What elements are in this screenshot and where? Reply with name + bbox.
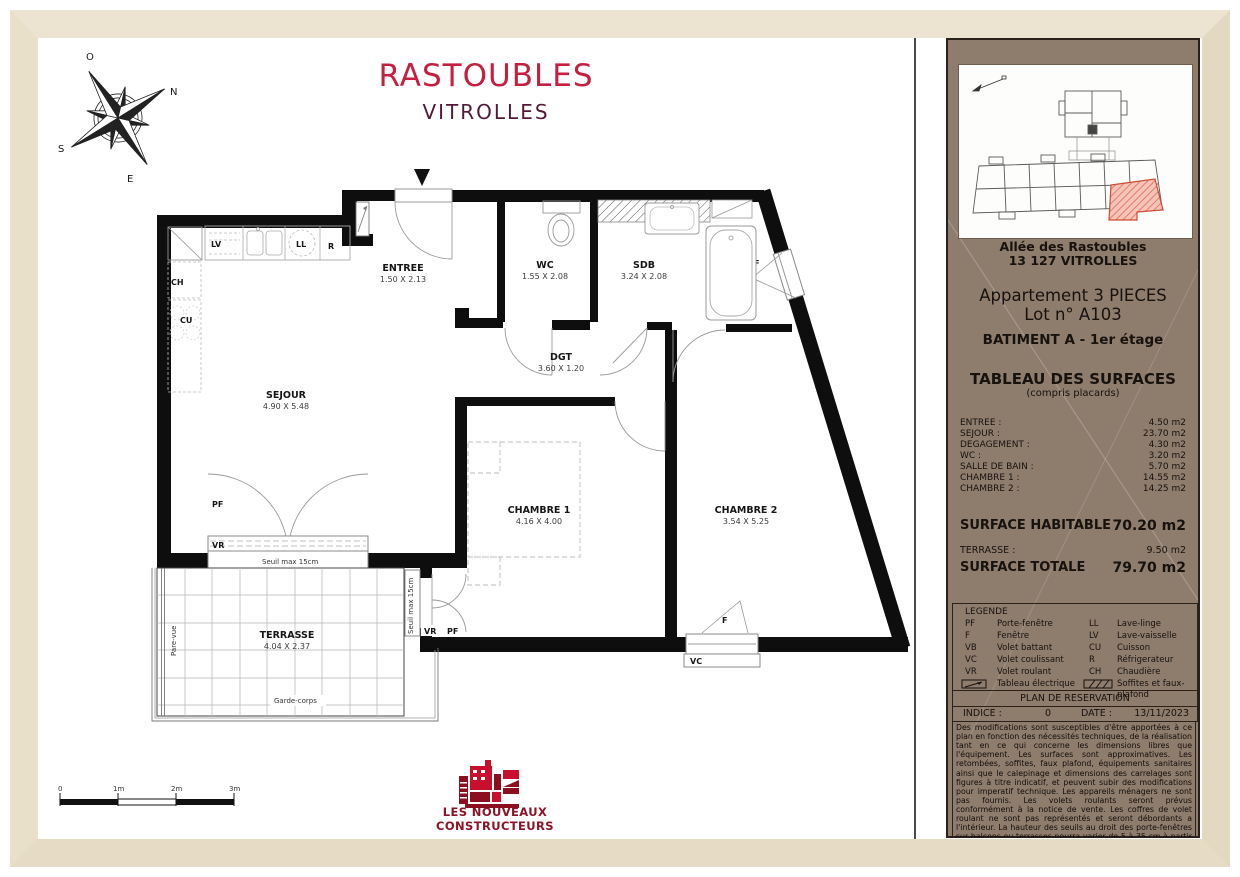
scale-3m: 3m	[229, 785, 240, 793]
room-dgt: DGT	[550, 352, 573, 363]
room-sejour-dims: 4.90 X 5.48	[263, 402, 309, 411]
surfaces-table: ENTREE :4.50 m2 SEJOUR :23.70 m2 DEGAGEM…	[960, 418, 1186, 495]
vr-label: VR	[212, 541, 224, 550]
legend-abbr: VR	[965, 667, 991, 678]
surface-value: 23.70 m2	[1143, 429, 1186, 440]
address-city: 13 127 VITROLLES	[948, 254, 1198, 268]
table-row: CHAMBRE 1 :14.55 m2	[960, 473, 1186, 484]
surface-label: SALLE DE BAIN :	[960, 462, 1034, 473]
habitable-label: SURFACE HABITABLE	[960, 518, 1111, 534]
legend-label: Chaudière	[1117, 667, 1160, 678]
address: Allée des Rastoubles 13 127 VITROLLES	[948, 240, 1198, 268]
logo-line1: LES NOUVEAUX	[395, 806, 595, 820]
vc-label: VC	[690, 657, 702, 666]
surface-value: 4.30 m2	[1149, 440, 1186, 451]
surface-label: DEGAGEMENT :	[960, 440, 1030, 451]
legend-abbr: VC	[965, 655, 991, 666]
room-wc-dims: 1.55 X 2.08	[522, 272, 568, 281]
totale-value: 79.70 m2	[1113, 560, 1187, 576]
legend-label: Lave-vaisselle	[1117, 631, 1177, 642]
table-row: ENTREE :4.50 m2	[960, 418, 1186, 429]
room-wc: WC	[536, 260, 553, 271]
lv-label: LV	[211, 240, 222, 249]
compass-o: O	[86, 52, 94, 63]
room-chambre2-dims: 3.54 X 5.25	[723, 517, 769, 526]
legend-abbr: VB	[965, 643, 991, 654]
room-labels: SEJOUR 4.90 X 5.48 ENTREE 1.50 X 2.13 WC…	[260, 260, 778, 651]
mini-map	[959, 65, 1192, 238]
ch-label: CH	[171, 278, 184, 287]
soffits-icon	[1083, 679, 1113, 689]
mini-building-upper	[1059, 91, 1127, 137]
surface-label: WC :	[960, 451, 981, 462]
indice-value: 0	[1045, 706, 1051, 721]
legend-abbr: R	[1089, 655, 1113, 666]
scale-1m: 1m	[113, 785, 124, 793]
electrical-panel-icon	[961, 679, 987, 689]
legend-abbr: PF	[965, 619, 991, 630]
compass-n: N	[170, 87, 177, 98]
date-value: 13/11/2023	[1134, 706, 1189, 721]
ll-label: LL	[296, 240, 306, 249]
terrasse-label: TERRASSE :	[960, 545, 1015, 556]
room-terrasse-dims: 4.04 X 2.37	[264, 642, 310, 651]
surface-label: SEJOUR :	[960, 429, 1000, 440]
sejour-terrace-door: Seuil max 15cm PF VR	[208, 474, 368, 568]
legend-abbr: LL	[1089, 619, 1113, 630]
room-entree: ENTREE	[382, 263, 423, 274]
legend-label: Fenêtre	[997, 631, 1029, 642]
building-floor: BATIMENT A - 1er étage	[948, 332, 1198, 348]
scale-2m: 2m	[171, 785, 182, 793]
compass-e: E	[127, 174, 133, 185]
fridge-label: R	[328, 242, 334, 251]
apartment-lot: Lot n° A103	[948, 305, 1198, 324]
pf-label-2: PF	[447, 627, 458, 636]
vr-label-2: VR	[424, 627, 436, 636]
apartment-heading: Appartement 3 PIECES Lot n° A103	[948, 286, 1198, 324]
table-row: WC :3.20 m2	[960, 451, 1186, 462]
info-panel: Allée des Rastoubles 13 127 VITROLLES Ap…	[946, 38, 1200, 838]
legend-label: Volet battant	[997, 643, 1052, 654]
chambre2-window: VC F	[684, 601, 760, 667]
entrance-arrow-icon	[414, 169, 430, 186]
indice-label: INDICE :	[963, 706, 1002, 721]
mini-compass-icon	[973, 76, 1006, 91]
sdb-window: F	[752, 249, 805, 300]
compass-s: S	[58, 144, 64, 155]
table-row: SALLE DE BAIN :5.70 m2	[960, 462, 1186, 473]
legend-label: Réfrigerateur	[1117, 655, 1173, 666]
legend-abbr: CU	[1089, 643, 1113, 654]
room-chambre2: CHAMBRE 2	[715, 505, 778, 516]
surface-value: 5.70 m2	[1149, 462, 1186, 473]
compass-rose: O N E S	[42, 42, 194, 194]
walls	[157, 190, 908, 652]
date-label: DATE :	[1081, 706, 1112, 721]
garde-corps-label: Garde-corps	[274, 697, 317, 705]
surface-habitable-row: SURFACE HABITABLE 70.20 m2	[960, 518, 1186, 534]
surface-value: 4.50 m2	[1149, 418, 1186, 429]
seuil-label: Seuil max 15cm	[262, 558, 319, 566]
table-row: CHAMBRE 2 :14.25 m2	[960, 484, 1186, 495]
surface-label: CHAMBRE 2 :	[960, 484, 1020, 495]
legend-abbr: F	[965, 631, 991, 642]
legend-label: Volet roulant	[997, 667, 1051, 678]
mini-connector	[1069, 137, 1115, 160]
surface-value: 14.55 m2	[1143, 473, 1186, 484]
habitable-value: 70.20 m2	[1113, 518, 1187, 534]
scale-0: 0	[58, 785, 62, 793]
legend-label: Volet coulissant	[997, 655, 1064, 666]
terrasse-value: 9.50 m2	[1147, 545, 1186, 556]
totale-label: SURFACE TOTALE	[960, 560, 1085, 576]
mini-apartment-highlight	[1109, 179, 1163, 220]
pf-label: PF	[212, 500, 223, 509]
entrance-door	[395, 169, 452, 259]
surface-label: ENTREE :	[960, 418, 1001, 429]
legend-title: LEGENDE	[965, 607, 1008, 617]
legend-abbr: CH	[1089, 667, 1113, 678]
window-f2-label: F	[722, 616, 727, 625]
room-chambre1-dims: 4.16 X 4.00	[516, 517, 562, 526]
toilet	[543, 201, 580, 246]
location-inset	[958, 64, 1193, 239]
legend-label: Cuisson	[1117, 643, 1150, 654]
room-sdb: SDB	[633, 260, 655, 271]
scale-bar: 0 1m 2m 3m	[58, 785, 240, 806]
surface-label: CHAMBRE 1 :	[960, 473, 1020, 484]
bathroom-fixtures	[598, 200, 756, 320]
panel-separator	[914, 38, 916, 839]
kitchen-fixtures: LV LL R CH CU	[168, 202, 369, 392]
cu-label: CU	[180, 316, 192, 325]
indice-date-row: INDICE : 0 DATE : 13/11/2023	[952, 706, 1198, 722]
legend-elec-label: Tableau électrique	[997, 679, 1075, 690]
builder-logo-text: LES NOUVEAUX CONSTRUCTEURS	[395, 806, 595, 833]
chambre1-terrace-door: Seuil max 15cm VR PF	[405, 570, 466, 636]
room-terrasse: TERRASSE	[260, 630, 315, 641]
room-dgt-dims: 3.60 X 1.20	[538, 364, 584, 373]
room-chambre1: CHAMBRE 1	[508, 505, 571, 516]
builder-logo-icon	[459, 760, 519, 808]
legend-abbr: LV	[1089, 631, 1113, 642]
room-sejour: SEJOUR	[266, 390, 307, 401]
room-sdb-dims: 3.24 X 2.08	[621, 272, 667, 281]
terrasse-row: TERRASSE : 9.50 m2	[960, 545, 1186, 556]
table-row: DEGAGEMENT :4.30 m2	[960, 440, 1186, 451]
interior-doors	[505, 328, 725, 451]
disclaimer-text: Des modifications sont susceptibles d'êt…	[952, 721, 1196, 838]
room-entree-dims: 1.50 X 2.13	[380, 275, 426, 284]
surface-value: 14.25 m2	[1143, 484, 1186, 495]
legend-soffits-label: Soffites et faux-plafond	[1117, 679, 1197, 690]
legend-box: LEGENDE PF Porte-fenêtre F Fenêtre VB Vo…	[952, 603, 1198, 691]
floorplan-page: RASTOUBLES VITROLLES	[0, 0, 1240, 877]
logo-line2: CONSTRUCTEURS	[395, 820, 595, 834]
apartment-type: Appartement 3 PIECES	[948, 286, 1198, 305]
surface-value: 3.20 m2	[1149, 451, 1186, 462]
seuil-label-2: Seuil max 15cm	[407, 577, 415, 634]
surfaces-subtitle: (compris placards)	[948, 388, 1198, 399]
pare-vue-label: Pare-vue	[170, 626, 178, 656]
legend-label: Lave-linge	[1117, 619, 1161, 630]
address-street: Allée des Rastoubles	[948, 240, 1198, 254]
surfaces-title: TABLEAU DES SURFACES	[948, 370, 1198, 388]
table-row: SEJOUR :23.70 m2	[960, 429, 1186, 440]
surface-totale-row: SURFACE TOTALE 79.70 m2	[960, 560, 1186, 576]
legend-label: Porte-fenêtre	[997, 619, 1053, 630]
reservation-band: PLAN DE RESERVATION	[952, 691, 1198, 707]
